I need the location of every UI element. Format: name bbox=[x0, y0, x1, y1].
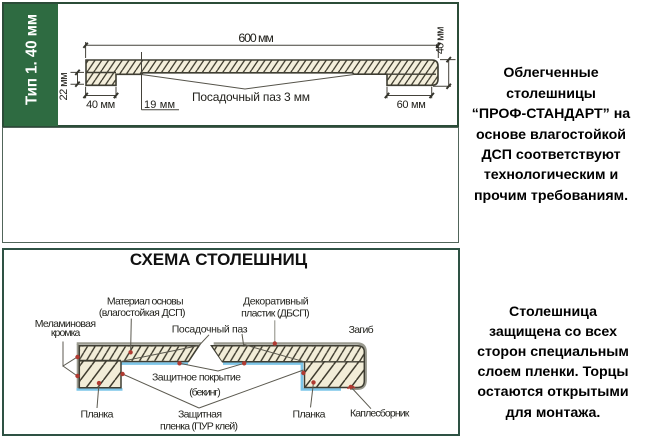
svg-text:Загиб: Загиб bbox=[349, 324, 374, 336]
svg-text:Планка: Планка bbox=[293, 409, 326, 421]
svg-text:Защитное покрытие: Защитное покрытие bbox=[152, 372, 241, 384]
svg-text:600 мм: 600 мм bbox=[238, 31, 273, 45]
svg-text:(бекинг): (бекинг) bbox=[189, 387, 221, 399]
svg-text:пленка (ПУР клей): пленка (ПУР клей) bbox=[160, 421, 238, 433]
svg-text:40 мм: 40 мм bbox=[86, 99, 115, 111]
svg-text:Защитная: Защитная bbox=[178, 409, 222, 421]
svg-text:19 мм: 19 мм bbox=[144, 99, 175, 111]
svg-text:Декоративный: Декоративный bbox=[243, 296, 309, 308]
svg-text:60 мм: 60 мм bbox=[397, 99, 426, 111]
svg-text:40 мм: 40 мм bbox=[435, 26, 447, 54]
svg-text:пластик (ДБСП): пластик (ДБСП) bbox=[241, 307, 310, 319]
svg-text:Посадочный паз: Посадочный паз bbox=[172, 324, 248, 336]
svg-text:(влагостойкая ДСП): (влагостойкая ДСП) bbox=[99, 307, 186, 319]
svg-text:Посадочный паз 3 мм: Посадочный паз 3 мм bbox=[192, 90, 310, 104]
svg-text:кромка: кромка bbox=[51, 327, 81, 339]
svg-text:Планка: Планка bbox=[81, 409, 114, 421]
svg-text:Материал основы: Материал основы bbox=[107, 296, 184, 308]
svg-text:Каплесборник: Каплесборник bbox=[350, 408, 410, 420]
svg-text:22 мм: 22 мм bbox=[58, 72, 70, 100]
